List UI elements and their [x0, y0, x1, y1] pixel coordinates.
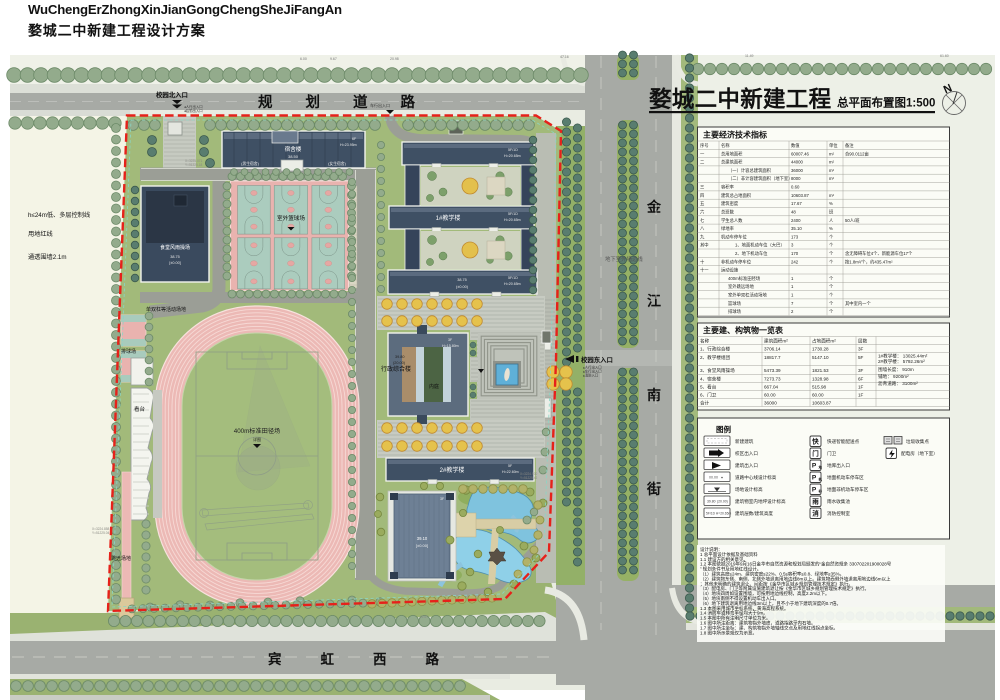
svg-text:内庭: 内庭: [429, 383, 439, 390]
svg-text:3F: 3F: [858, 346, 864, 351]
svg-text:其中室内一个: 其中室内一个: [845, 300, 871, 307]
svg-text:七: 七: [700, 217, 705, 223]
svg-text:人: 人: [829, 218, 834, 223]
svg-text:建筑出入口: 建筑出入口: [735, 462, 758, 469]
svg-text:雨: 雨: [812, 498, 819, 506]
svg-text:8000: 8000: [791, 176, 801, 181]
svg-text:道路中心线设计标高: 道路中心线设计标高: [735, 474, 777, 481]
svg-text:一: 一: [700, 151, 705, 156]
svg-text:10603.87: 10603.87: [791, 193, 810, 198]
svg-text:0.60: 0.60: [791, 185, 800, 190]
svg-text:50人/班: 50人/班: [845, 217, 860, 224]
svg-text:用地红线: 用地红线: [28, 230, 53, 238]
svg-text:校区出入口: 校区出入口: [735, 450, 758, 457]
svg-text:38.50: 38.50: [288, 154, 299, 159]
svg-text:1、地面机动车位（大巴）: 1、地面机动车位（大巴）: [735, 242, 785, 249]
svg-text:515.98: 515.98: [812, 384, 826, 389]
svg-text:[±0.00]: [±0.00]: [416, 543, 428, 548]
svg-text:H=15.80m: H=15.80m: [442, 344, 459, 348]
svg-text:室外跳远场地: 室外跳远场地: [728, 283, 754, 290]
svg-text:2#教学楼: 2#教学楼: [440, 466, 465, 474]
svg-text:1.8 图中所示景观仅为示意。: 1.8 图中所示景观仅为示意。: [700, 629, 757, 636]
svg-text:3、食堂风雨操场: 3、食堂风雨操场: [700, 367, 735, 374]
svg-text:名称: 名称: [721, 142, 730, 149]
svg-text:图例: 图例: [716, 424, 731, 434]
svg-text:地面机动车停车区: 地面机动车停车区: [827, 474, 864, 481]
svg-text:5F/1D H=20.65m: 5F/1D H=20.65m: [706, 512, 731, 516]
svg-text:36000: 36000: [764, 400, 777, 405]
svg-text:运动设施: 运动设施: [721, 267, 739, 274]
svg-text:1821.53: 1821.53: [812, 368, 829, 373]
svg-text:校园东入口: 校园东入口: [581, 355, 613, 364]
svg-text:南: 南: [647, 387, 661, 403]
svg-text:详图: 详图: [253, 436, 261, 442]
svg-text:绿地率: 绿地率: [721, 225, 735, 232]
svg-text:44000: 44000: [791, 160, 804, 165]
svg-text:室外篮球场: 室外篮球场: [277, 214, 305, 222]
svg-text:6.00: 6.00: [300, 57, 307, 61]
svg-text:1F: 1F: [858, 392, 864, 397]
svg-text:1328.98: 1328.98: [812, 376, 829, 381]
svg-text:667.04: 667.04: [764, 384, 778, 389]
svg-text:建筑面积m²: 建筑面积m²: [764, 337, 788, 344]
svg-text:个: 个: [829, 251, 834, 256]
svg-text:H=20.65m: H=20.65m: [504, 282, 521, 286]
svg-text:3F: 3F: [858, 368, 864, 373]
svg-text:其中: 其中: [700, 242, 709, 249]
svg-text:1、行政综合楼: 1、行政综合楼: [700, 345, 731, 352]
svg-text:11.49: 11.49: [745, 54, 754, 58]
svg-text:%: %: [829, 226, 833, 231]
svg-text:三: 三: [700, 185, 705, 190]
svg-text:宿舍楼: 宿舍楼: [285, 145, 302, 153]
svg-text:八: 八: [700, 226, 705, 231]
svg-text:个: 个: [829, 243, 834, 248]
svg-text:5147.10: 5147.10: [812, 355, 829, 360]
svg-text:通透围墙2.1m: 通透围墙2.1m: [28, 253, 67, 261]
svg-text:数值: 数值: [791, 142, 800, 149]
svg-text:(女生宿舍): (女生宿舍): [328, 161, 346, 166]
svg-text:1F: 1F: [858, 384, 864, 389]
svg-text:江: 江: [647, 293, 661, 309]
svg-text:行政综合楼: 行政综合楼: [381, 365, 411, 373]
svg-text:个: 个: [829, 276, 834, 281]
svg-text:地下室外墙边线: 地下室外墙边线: [605, 255, 643, 263]
svg-text:m²: m²: [829, 168, 835, 173]
svg-text:m²: m²: [829, 193, 835, 198]
svg-text:47.16: 47.16: [560, 55, 569, 59]
svg-text:容积率: 容积率: [721, 184, 735, 191]
svg-text:(20.00): (20.00): [393, 361, 406, 365]
svg-text:快递智能配送点: 快递智能配送点: [827, 438, 860, 445]
svg-text:5F/1D: 5F/1D: [508, 276, 518, 280]
svg-text:7273.73: 7273.73: [764, 376, 781, 381]
svg-text:%: %: [829, 201, 833, 206]
svg-text:沥青道路： 3100m²: 沥青道路： 3100m²: [878, 380, 918, 387]
svg-text:快: 快: [812, 437, 819, 446]
svg-text:（二）非计容建筑面积（地下室）: （二）非计容建筑面积（地下室）: [728, 175, 792, 182]
svg-text:总平面布置图1:500: 总平面布置图1:500: [837, 96, 935, 110]
svg-text:篮球场: 篮球场: [728, 300, 742, 307]
svg-text:00.00: 00.00: [709, 476, 718, 480]
svg-text:室外单双杠活动场地: 室外单双杠活动场地: [728, 292, 767, 299]
svg-text:5F/1D: 5F/1D: [508, 212, 518, 216]
svg-text:个: 个: [829, 301, 834, 306]
svg-text:39.10: 39.10: [417, 536, 428, 541]
svg-text:街: 街: [646, 481, 661, 497]
svg-text:60007.46: 60007.46: [791, 151, 810, 156]
svg-text:m²: m²: [829, 151, 835, 156]
svg-text:WuChengErZhongXinJianGongCheng: WuChengErZhongXinJianGongChengSheJiFangA…: [28, 2, 342, 17]
svg-text:22.67: 22.67: [420, 615, 428, 619]
svg-text:宾虹西路: 宾虹西路: [268, 651, 478, 667]
svg-text:金: 金: [646, 199, 662, 215]
svg-text:242: 242: [791, 259, 799, 264]
svg-text:地库出入口: 地库出入口: [827, 462, 850, 469]
svg-text:六: 六: [700, 209, 705, 216]
svg-text:(男生宿舍): (男生宿舍): [241, 161, 259, 166]
svg-text:名称: 名称: [700, 337, 710, 344]
svg-text:门卫: 门卫: [827, 450, 837, 457]
svg-text:合计: 合计: [700, 399, 710, 406]
svg-text:61.60: 61.60: [940, 54, 949, 58]
svg-text:非机动车停车位: 非机动车停车位: [721, 258, 752, 265]
svg-text:173: 173: [791, 234, 799, 239]
svg-text:5F: 5F: [858, 355, 864, 360]
svg-text:四: 四: [700, 193, 704, 198]
svg-text:婺城二中新建工程: 婺城二中新建工程: [649, 86, 832, 112]
svg-text:排球场: 排球场: [121, 348, 136, 355]
svg-text:400m标准田径场: 400m标准田径场: [728, 275, 761, 282]
svg-text:H=23.95m: H=23.95m: [340, 143, 357, 147]
svg-text:60.00: 60.00: [812, 392, 824, 397]
svg-text:配电房（地下室）: 配电房（地下室）: [901, 450, 938, 457]
svg-text:含无障碍车位4个、新能源车位17个: 含无障碍车位4个、新能源车位17个: [845, 250, 913, 257]
svg-text:建筑物室内地坪设计标高: 建筑物室内地坪设计标高: [735, 498, 786, 505]
svg-text:39.80: 39.80: [395, 355, 405, 359]
svg-text:9.67: 9.67: [330, 57, 337, 61]
svg-text:H=20.65m: H=20.65m: [504, 218, 521, 222]
svg-text:▴消防入口: ▴消防入口: [583, 373, 598, 378]
svg-text:38.75: 38.75: [457, 278, 467, 282]
svg-text:(±0.00): (±0.00): [456, 285, 469, 289]
svg-text:总用地面积: 总用地面积: [721, 150, 743, 157]
svg-text:婺城二中新建工程设计方案: 婺城二中新建工程设计方案: [28, 23, 206, 39]
svg-text:1730.28: 1730.28: [812, 346, 829, 351]
svg-text:1#教学楼: 1#教学楼: [436, 214, 461, 222]
svg-text:校园北入口: 校园北入口: [156, 90, 188, 99]
svg-text:5、看台: 5、看台: [700, 383, 717, 390]
svg-text:2、教学楼组团: 2、教学楼组团: [700, 354, 731, 361]
svg-text:H=22.60m: H=22.60m: [502, 470, 519, 474]
svg-text:序号: 序号: [700, 142, 709, 149]
svg-text:P: P: [812, 475, 817, 482]
svg-text:个: 个: [829, 234, 834, 239]
svg-text:h≤24m低、多层控制线: h≤24m低、多层控制线: [28, 211, 90, 219]
svg-text:排球场: 排球场: [728, 308, 742, 315]
svg-text:九: 九: [700, 233, 705, 240]
svg-text:规划道路: 规划道路: [258, 93, 448, 111]
svg-text:个: 个: [829, 259, 834, 264]
svg-text:主要建、构筑物一览表: 主要建、构筑物一览表: [703, 325, 784, 335]
svg-text:建筑层数/建筑高度: 建筑层数/建筑高度: [735, 510, 773, 517]
svg-text:总建筑面积: 总建筑面积: [721, 159, 743, 166]
svg-text:地面非机动车停车区: 地面非机动车停车区: [827, 486, 869, 493]
svg-text:场地设计标高: 场地设计标高: [735, 486, 763, 493]
svg-text:2400: 2400: [791, 218, 801, 223]
svg-text:个: 个: [829, 284, 834, 289]
svg-text:跳远场地: 跳远场地: [111, 555, 131, 562]
svg-text:机动车停车位: 机动车停车位: [721, 233, 747, 240]
svg-text:总班数: 总班数: [721, 209, 735, 216]
svg-text:48: 48: [791, 210, 796, 215]
svg-text:Y=51225.18: Y=51225.18: [185, 163, 203, 167]
svg-text:m²: m²: [829, 176, 835, 181]
svg-text:17.67: 17.67: [791, 201, 802, 206]
svg-text:3706.14: 3706.14: [764, 346, 781, 351]
svg-text:6F: 6F: [858, 376, 864, 381]
svg-text:合90.0112亩: 合90.0112亩: [845, 150, 870, 157]
svg-text:个: 个: [829, 309, 834, 314]
svg-text:35.10: 35.10: [791, 226, 802, 231]
svg-text:十一: 十一: [700, 267, 709, 274]
svg-text:消: 消: [812, 509, 819, 518]
svg-text:单双杠等活动场地: 单双杠等活动场地: [146, 306, 186, 313]
svg-text:P: P: [812, 487, 817, 494]
svg-text:车行出入口: 车行出入口: [370, 102, 390, 108]
svg-text:20.98: 20.98: [390, 57, 399, 61]
svg-text:铺地： 9200m²: 铺地： 9200m²: [878, 373, 909, 380]
svg-text:39.80: 39.80: [707, 500, 716, 504]
svg-text:6、门卫: 6、门卫: [700, 391, 717, 398]
svg-text:个: 个: [829, 293, 834, 298]
svg-text:18817.7: 18817.7: [764, 355, 781, 360]
svg-text:2、地下机动车位: 2、地下机动车位: [735, 250, 768, 257]
svg-text:学生总人数: 学生总人数: [721, 217, 743, 224]
svg-text:五: 五: [700, 201, 705, 206]
svg-text:m²: m²: [829, 160, 835, 165]
svg-text:新建建筑: 新建建筑: [735, 438, 754, 445]
svg-text:400m标准田径场: 400m标准田径场: [234, 427, 280, 435]
svg-text:占地面积m²: 占地面积m²: [812, 337, 836, 344]
svg-text:60.00: 60.00: [764, 392, 776, 397]
svg-text:2#教学楼： 5792.26m²: 2#教学楼： 5792.26m²: [878, 358, 925, 365]
svg-text:二: 二: [700, 160, 705, 165]
svg-text:4、宿舍楼: 4、宿舍楼: [700, 375, 721, 382]
svg-text:H=20.65m: H=20.65m: [504, 154, 521, 158]
svg-text:垃圾收集点: 垃圾收集点: [906, 438, 929, 445]
svg-text:门: 门: [812, 449, 819, 458]
svg-text:◂后勤出入口: ◂后勤出入口: [184, 108, 203, 113]
svg-text:(20.00): (20.00): [717, 500, 728, 504]
svg-text:38.75: 38.75: [170, 255, 180, 259]
svg-text:看台: 看台: [134, 405, 146, 413]
svg-text:5F/1D: 5F/1D: [508, 148, 518, 152]
svg-text:5473.39: 5473.39: [764, 368, 781, 373]
svg-text:建筑密度: 建筑密度: [721, 200, 739, 207]
svg-text:十: 十: [700, 258, 705, 265]
svg-text:Y=51225.42: Y=51225.42: [520, 476, 538, 480]
svg-text:170: 170: [791, 251, 799, 256]
svg-text:（一）计容总建筑面积: （一）计容总建筑面积: [728, 167, 772, 174]
svg-text:主要经济技术指标: 主要经济技术指标: [703, 130, 767, 140]
svg-text:备注: 备注: [845, 142, 854, 149]
svg-text:围墙长度： 910m: 围墙长度： 910m: [878, 366, 914, 373]
svg-text:Y=51225.04: Y=51225.04: [92, 531, 110, 535]
svg-text:层数: 层数: [858, 337, 868, 344]
svg-text:雨水收集池: 雨水收集池: [827, 498, 850, 505]
svg-text:建筑总占地面积: 建筑总占地面积: [721, 192, 752, 199]
svg-text:消防控制室: 消防控制室: [827, 510, 850, 517]
svg-text:36000: 36000: [791, 168, 804, 173]
svg-text:食堂风雨操场: 食堂风雨操场: [160, 244, 190, 251]
svg-text:P: P: [812, 463, 817, 470]
svg-text:[±0.00]: [±0.00]: [169, 261, 181, 265]
svg-text:单位: 单位: [829, 142, 838, 149]
svg-text:10603.87: 10603.87: [812, 400, 832, 405]
svg-text:班: 班: [829, 209, 834, 216]
svg-text:按1.8m²/个，约435.47m²: 按1.8m²/个，约435.47m²: [845, 258, 893, 265]
